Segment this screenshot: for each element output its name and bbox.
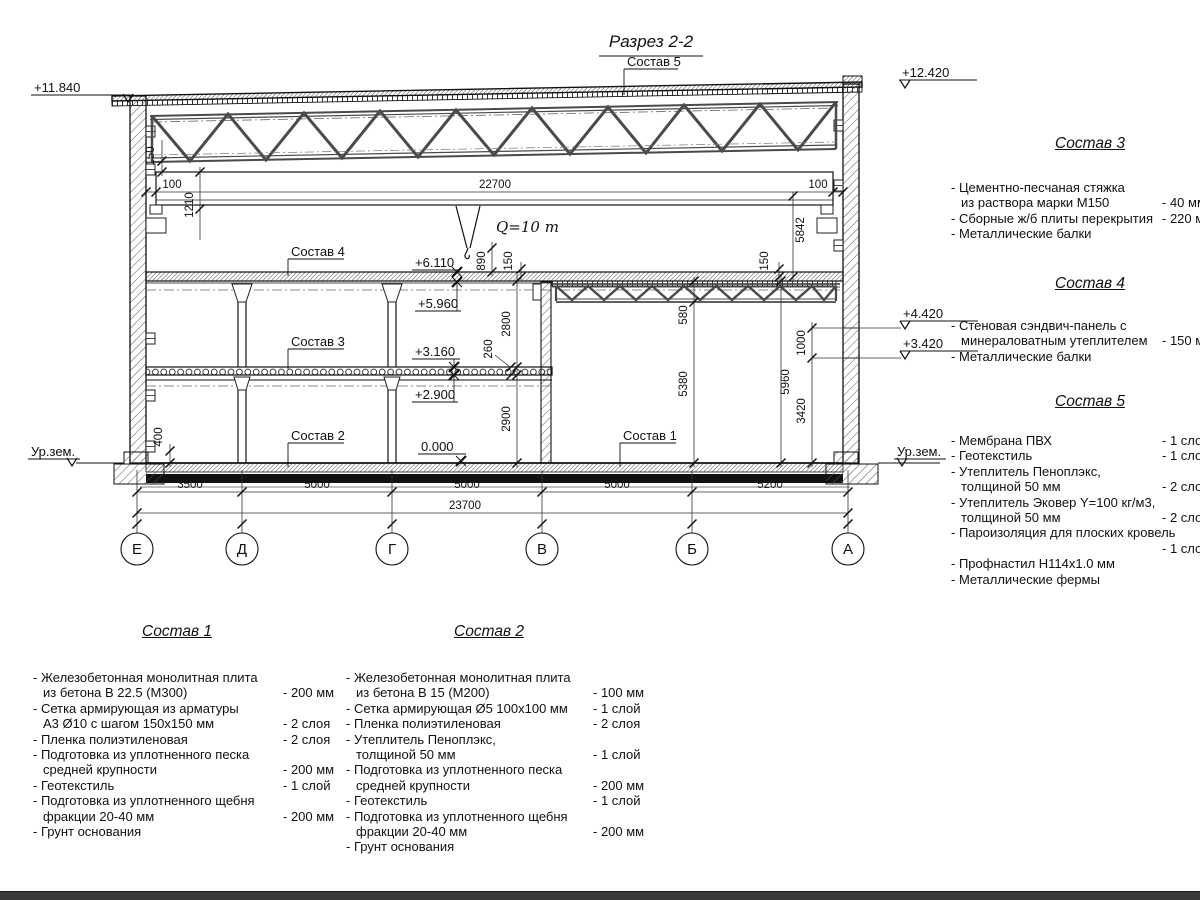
spec-item-value: - 1 слой bbox=[1162, 541, 1200, 556]
window-bottom-edge bbox=[0, 891, 1200, 900]
ground-level-label-left: Ур.зем. bbox=[31, 444, 75, 459]
spec-list-sostav-1: Состав 1- Железобетонная монолитная плит… bbox=[33, 624, 323, 839]
spec-row: - Пленка полиэтиленовая- 2 слоя bbox=[33, 732, 323, 747]
spec-row: - Подготовка из уплотненного щебня bbox=[33, 793, 323, 808]
axis-A: А bbox=[843, 541, 853, 558]
spec-list-sostav-4: Состав 4- Стеновая сэндвич-панель сминер… bbox=[951, 276, 1200, 364]
spec-item-text: - Пленка полиэтиленовая bbox=[33, 732, 188, 747]
spec-item-text: из бетона В 15 (М200) bbox=[356, 685, 490, 700]
spec-item-value: - 2 слоя bbox=[1162, 479, 1200, 494]
dim-150-left: 150 bbox=[145, 146, 157, 165]
spec-heading: Состав 2 bbox=[346, 624, 632, 644]
elevation-11840: +11.840 bbox=[34, 80, 80, 95]
left-footing bbox=[124, 452, 148, 464]
spec-row: - Пароизоляция для плоских кровель bbox=[951, 525, 1200, 540]
spec-item-text: - Подготовка из уплотненного щебня bbox=[346, 809, 568, 824]
dim-890: 890 bbox=[476, 251, 488, 270]
spec-row: - Железобетонная монолитная плита bbox=[33, 670, 323, 685]
spec-item-text: из раствора марки М150 bbox=[961, 195, 1109, 210]
page-title: Разрез 2-2 bbox=[609, 32, 694, 51]
spec-item-text: - Профнастил Н114х1.0 мм bbox=[951, 556, 1115, 571]
spec-item-text: - Металлические фермы bbox=[951, 572, 1100, 587]
spec-item-text: - Мембрана ПВХ bbox=[951, 433, 1052, 448]
spec-item-text: - Геотекстиль bbox=[951, 448, 1032, 463]
dim-5960: 5960 bbox=[780, 369, 792, 395]
dim-100-left: 100 bbox=[162, 179, 181, 191]
elevation-2900: +2.900 bbox=[415, 387, 455, 402]
spec-row: А3 Ø10 с шагом 150х150 мм- 2 слоя bbox=[33, 716, 323, 731]
dim-580: 580 bbox=[678, 305, 690, 324]
spec-item-text: - Сетка армирующая из арматуры bbox=[33, 701, 239, 716]
spec-row: - Металлические балки bbox=[951, 226, 1200, 241]
spec-row: фракции 20-40 мм- 200 мм bbox=[346, 824, 636, 839]
spec-row: - Сетка армирующая Ø5 100х100 мм- 1 слой bbox=[346, 701, 636, 716]
spec-rows: - Железобетонная монолитная плитаиз бето… bbox=[33, 670, 323, 839]
dim-5000-3: 5000 bbox=[604, 479, 630, 491]
spec-row: минераловатным утеплителем- 150 мм bbox=[951, 333, 1200, 348]
spec-item-text: - Пароизоляция для плоских кровель bbox=[951, 525, 1175, 540]
spec-item-text: - Стеновая сэндвич-панель с bbox=[951, 318, 1126, 333]
ground-floor bbox=[76, 452, 940, 487]
leader-sostav-2: Состав 2 bbox=[291, 428, 345, 443]
spec-item-text: минераловатным утеплителем bbox=[961, 333, 1148, 348]
spec-item-text: - Подготовка из уплотненного песка bbox=[33, 747, 249, 762]
dim-2800: 2800 bbox=[501, 311, 513, 337]
elevation-5960: +5.960 bbox=[418, 296, 458, 311]
spec-rows: - Железобетонная монолитная плитаиз бето… bbox=[346, 670, 636, 855]
spec-item-value: - 100 мм bbox=[593, 685, 644, 700]
spec-row: - Утеплитель Пеноплэкс, bbox=[346, 732, 636, 747]
spec-row: - Профнастил Н114х1.0 мм bbox=[951, 556, 1200, 571]
spec-item-value: - 1 слой bbox=[1162, 433, 1200, 448]
axis-bubbles: Е Д Г В Б А bbox=[121, 533, 864, 565]
spec-row: - Металлические балки bbox=[951, 349, 1200, 364]
dim-5000-2: 5000 bbox=[454, 479, 480, 491]
spec-row: - Утеплитель Эковер Y=100 кг/м3, bbox=[951, 495, 1200, 510]
spec-item-text: толщиной 50 мм bbox=[356, 747, 456, 762]
spec-item-text: толщиной 50 мм bbox=[961, 510, 1061, 525]
spec-item-value: - 1 слой bbox=[593, 701, 641, 716]
spec-item-text: - Подготовка из уплотненного щебня bbox=[33, 793, 255, 808]
leader-sostav-3: Состав 3 bbox=[291, 334, 345, 349]
spec-item-text: - Геотекстиль bbox=[346, 793, 427, 808]
axis-B: Б bbox=[687, 541, 697, 558]
spec-row: - Подготовка из уплотненного песка bbox=[346, 762, 636, 777]
spec-item-text: - Металлические балки bbox=[951, 226, 1091, 241]
spec-row: - Грунт основания bbox=[346, 839, 636, 854]
ground-level-label-right: Ур.зем. bbox=[897, 444, 941, 459]
spec-item-text: фракции 20-40 мм bbox=[356, 824, 467, 839]
elevation-3420: +3.420 bbox=[903, 336, 943, 351]
spec-heading: Состав 5 bbox=[951, 394, 1200, 414]
spec-item-value: - 200 мм bbox=[593, 824, 644, 839]
spec-row: - Утеплитель Пеноплэкс, bbox=[951, 464, 1200, 479]
spec-item-text: - Подготовка из уплотненного песка bbox=[346, 762, 562, 777]
dim-5200: 5200 bbox=[757, 479, 783, 491]
leader-sostav-5: Состав 5 bbox=[627, 54, 681, 69]
spec-row: из раствора марки М150- 40 мм bbox=[951, 195, 1200, 210]
elevation-12420: +12.420 bbox=[902, 65, 949, 80]
dim-150-mid: 150 bbox=[503, 251, 515, 270]
spec-row: - Подготовка из уплотненного песка bbox=[33, 747, 323, 762]
spec-item-value: - 2 слоя bbox=[283, 732, 330, 747]
spec-list-sostav-5: Состав 5- Мембрана ПВХ- 1 слой- Геотекст… bbox=[951, 394, 1200, 587]
spec-row: - Геотекстиль- 1 слой bbox=[33, 778, 323, 793]
dim-22700: 22700 bbox=[479, 179, 511, 191]
spec-heading: Состав 3 bbox=[951, 136, 1200, 156]
spec-row: - Подготовка из уплотненного щебня bbox=[346, 809, 636, 824]
spec-item-text: из бетона В 22.5 (М300) bbox=[43, 685, 187, 700]
spec-item-text: - Пленка полиэтиленовая bbox=[346, 716, 501, 731]
spec-item-value: - 200 мм bbox=[283, 685, 334, 700]
dim-260: 260 bbox=[483, 339, 495, 358]
spec-row: из бетона В 15 (М200)- 100 мм bbox=[346, 685, 636, 700]
spec-item-value: - 2 слоя bbox=[1162, 510, 1200, 525]
spec-row: - Железобетонная монолитная плита bbox=[346, 670, 636, 685]
spec-item-text: - Железобетонная монолитная плита bbox=[33, 670, 258, 685]
dim-3420: 3420 bbox=[796, 398, 808, 424]
spec-item-text: - Утеплитель Эковер Y=100 кг/м3, bbox=[951, 495, 1155, 510]
spec-item-text: - Грунт основания bbox=[346, 839, 454, 854]
drawing-title: Разрез 2-2 bbox=[599, 32, 703, 56]
dim-5380: 5380 bbox=[678, 371, 690, 397]
spec-row: из бетона В 22.5 (М300)- 200 мм bbox=[33, 685, 323, 700]
spec-item-value: - 1 слой bbox=[283, 778, 331, 793]
left-wall bbox=[130, 96, 146, 463]
spec-item-value: - 40 мм bbox=[1162, 195, 1200, 210]
elevation-0000: 0.000 bbox=[421, 439, 454, 454]
spec-item-text: - Цементно-песчаная стяжка bbox=[951, 180, 1125, 195]
spec-row: - Сборные ж/б плиты перекрытия- 220 мм bbox=[951, 211, 1200, 226]
axis-D: Д bbox=[237, 541, 247, 558]
spec-row: - Цементно-песчаная стяжка bbox=[951, 180, 1200, 195]
spec-list-sostav-2: Состав 2- Железобетонная монолитная плит… bbox=[346, 624, 636, 855]
spec-item-text: А3 Ø10 с шагом 150х150 мм bbox=[43, 716, 214, 731]
spec-item-value: - 1 слой bbox=[1162, 448, 1200, 463]
spec-rows: - Стеновая сэндвич-панель сминераловатны… bbox=[951, 318, 1200, 364]
spec-heading: Состав 4 bbox=[951, 276, 1200, 296]
spec-item-value: - 2 слоя bbox=[283, 716, 330, 731]
spec-row: - Геотекстиль- 1 слой bbox=[951, 448, 1200, 463]
spec-row: - Мембрана ПВХ- 1 слой bbox=[951, 433, 1200, 448]
spec-item-value: - 220 мм bbox=[1162, 211, 1200, 226]
spec-row: - Стеновая сэндвич-панель с bbox=[951, 318, 1200, 333]
crane-capacity-label: Q=10 т bbox=[496, 218, 559, 236]
spec-item-value: - 200 мм bbox=[283, 762, 334, 777]
dim-1000: 1000 bbox=[796, 330, 808, 356]
spec-item-value: - 200 мм bbox=[283, 809, 334, 824]
spec-row: средней крупности- 200 мм bbox=[346, 778, 636, 793]
dim-150-right: 150 bbox=[759, 251, 771, 270]
spec-item-text: - Грунт основания bbox=[33, 824, 141, 839]
spec-row: - Пленка полиэтиленовая- 2 слоя bbox=[346, 716, 636, 731]
spec-list-sostav-3: Состав 3- Цементно-песчаная стяжкаиз рас… bbox=[951, 136, 1200, 242]
elevation-3160: +3.160 bbox=[415, 344, 455, 359]
dim-23700: 23700 bbox=[449, 500, 481, 512]
elevation-4420: +4.420 bbox=[903, 306, 943, 321]
spec-item-text: средней крупности bbox=[356, 778, 470, 793]
spec-item-value: - 2 слоя bbox=[593, 716, 640, 731]
spec-heading: Состав 1 bbox=[33, 624, 321, 644]
dim-100-right: 100 bbox=[808, 179, 827, 191]
dim-2900: 2900 bbox=[501, 406, 513, 432]
slab-3160 bbox=[146, 367, 552, 386]
spec-item-value: - 1 слой bbox=[593, 747, 641, 762]
spec-rows: - Цементно-песчаная стяжкаиз раствора ма… bbox=[951, 180, 1200, 242]
hall-truss bbox=[533, 284, 840, 302]
spec-item-value: - 150 мм bbox=[1162, 333, 1200, 348]
crane-hook bbox=[456, 206, 480, 259]
spec-row: - Сетка армирующая из арматуры bbox=[33, 701, 323, 716]
spec-item-value: - 200 мм bbox=[593, 778, 644, 793]
dim-3500: 3500 bbox=[177, 479, 203, 491]
right-wall bbox=[843, 84, 859, 463]
spec-item-text: - Утеплитель Пеноплэкс, bbox=[346, 732, 496, 747]
spec-item-value: - 1 слой bbox=[593, 793, 641, 808]
right-parapet-cap bbox=[843, 76, 862, 84]
spec-row: - Металлические фермы bbox=[951, 572, 1200, 587]
spec-item-text: толщиной 50 мм bbox=[961, 479, 1061, 494]
spec-row: толщиной 50 мм- 1 слой bbox=[346, 747, 636, 762]
spec-row: толщиной 50 мм- 2 слоя bbox=[951, 510, 1200, 525]
right-footing bbox=[834, 452, 858, 464]
spec-row: средней крупности- 200 мм bbox=[33, 762, 323, 777]
section-drawing-sheet: Разрез 2-2 bbox=[0, 0, 1200, 900]
spec-row: - Грунт основания bbox=[33, 824, 323, 839]
spec-item-text: - Утеплитель Пеноплэкс, bbox=[951, 464, 1101, 479]
leader-sostav-1: Состав 1 bbox=[623, 428, 677, 443]
dim-1210: 1210 bbox=[184, 192, 196, 218]
axis-V: В bbox=[537, 541, 547, 558]
spec-item-text: фракции 20-40 мм bbox=[43, 809, 154, 824]
spec-item-text: - Железобетонная монолитная плита bbox=[346, 670, 571, 685]
spec-row: фракции 20-40 мм- 200 мм bbox=[33, 809, 323, 824]
leader-sostav-4: Состав 4 bbox=[291, 244, 345, 259]
dim-400: 400 bbox=[153, 427, 165, 446]
spec-item-text: - Геотекстиль bbox=[33, 778, 114, 793]
spec-item-text: средней крупности bbox=[43, 762, 157, 777]
dim-5842: 5842 bbox=[795, 217, 807, 243]
spec-item-text: - Металлические балки bbox=[951, 349, 1091, 364]
axis-G: Г bbox=[388, 541, 396, 558]
elevation-6110: +6.110 bbox=[415, 255, 454, 270]
spec-item-text: - Сборные ж/б плиты перекрытия bbox=[951, 211, 1153, 226]
spec-row: - Геотекстиль- 1 слой bbox=[346, 793, 636, 808]
spec-row: - 1 слой bbox=[951, 541, 1200, 556]
dim-5000-1: 5000 bbox=[304, 479, 330, 491]
spec-item-text: - Сетка армирующая Ø5 100х100 мм bbox=[346, 701, 568, 716]
spec-rows: - Мембрана ПВХ- 1 слой- Геотекстиль- 1 с… bbox=[951, 433, 1200, 587]
roof-truss bbox=[150, 102, 838, 162]
axis-E: Е bbox=[132, 541, 142, 558]
spec-row: толщиной 50 мм- 2 слоя bbox=[951, 479, 1200, 494]
